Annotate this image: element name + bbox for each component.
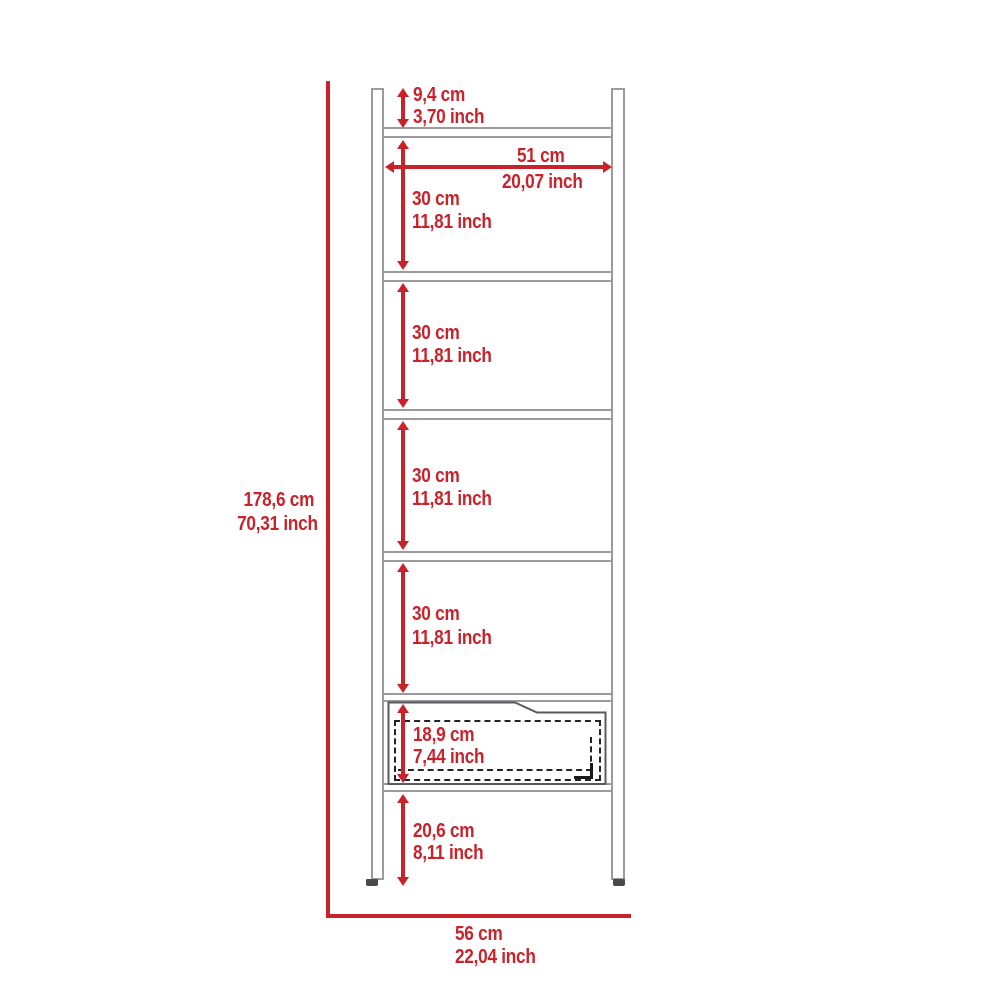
label-gap4-cm: 30 cm	[412, 603, 459, 626]
dim-arrow-top-offset	[397, 88, 409, 128]
label-total-height-cm: 178,6 cm	[243, 489, 314, 512]
label-shelf-width-cm: 51 cm	[517, 145, 564, 168]
ladder-shelf-dimension-drawing: 9,4 cm 3,70 inch 51 cm 20,07 inch 30 cm …	[0, 0, 1000, 1000]
label-gap1-inch: 11,81 inch	[412, 211, 492, 234]
label-total-width-cm: 56 cm	[455, 923, 502, 946]
shelf-board-3	[384, 409, 611, 420]
label-drawer-cm: 18,9 cm	[413, 724, 474, 747]
label-total-height-inch: 70,31 inch	[237, 513, 318, 536]
label-gap3-cm: 30 cm	[412, 465, 459, 488]
right-rail	[611, 88, 625, 880]
label-gap2-inch: 11,81 inch	[412, 345, 492, 368]
drawer-box-corner-mark	[574, 776, 593, 779]
label-gap3-inch: 11,81 inch	[412, 488, 492, 511]
label-gap4-inch: 11,81 inch	[412, 627, 492, 650]
shelf-board-2	[384, 271, 611, 282]
label-drawer-inch: 7,44 inch	[413, 746, 484, 769]
drawer-box-inner-dashed-bottom	[398, 769, 592, 771]
dim-arrow-gap-4	[397, 563, 409, 693]
width-extension-line	[326, 914, 631, 918]
dim-arrow-leg	[397, 794, 409, 886]
dim-arrow-gap-3	[397, 421, 409, 550]
label-leg-cm: 20,6 cm	[413, 820, 474, 843]
dim-arrow-gap-1	[397, 140, 409, 270]
label-top-offset-cm: 9,4 cm	[413, 84, 465, 107]
label-total-width-inch: 22,04 inch	[455, 946, 536, 969]
height-extension-line	[326, 81, 330, 918]
label-shelf-width-inch: 20,07 inch	[502, 171, 583, 194]
dim-arrow-drawer	[397, 704, 409, 783]
left-foot	[366, 879, 378, 886]
label-gap2-cm: 30 cm	[412, 322, 459, 345]
left-rail	[371, 88, 384, 880]
shelf-board-4	[384, 551, 611, 562]
label-top-offset-inch: 3,70 inch	[413, 106, 484, 129]
dim-arrow-gap-2	[397, 283, 409, 408]
label-leg-inch: 8,11 inch	[413, 842, 483, 865]
right-foot	[613, 879, 625, 886]
label-gap1-cm: 30 cm	[412, 188, 459, 211]
